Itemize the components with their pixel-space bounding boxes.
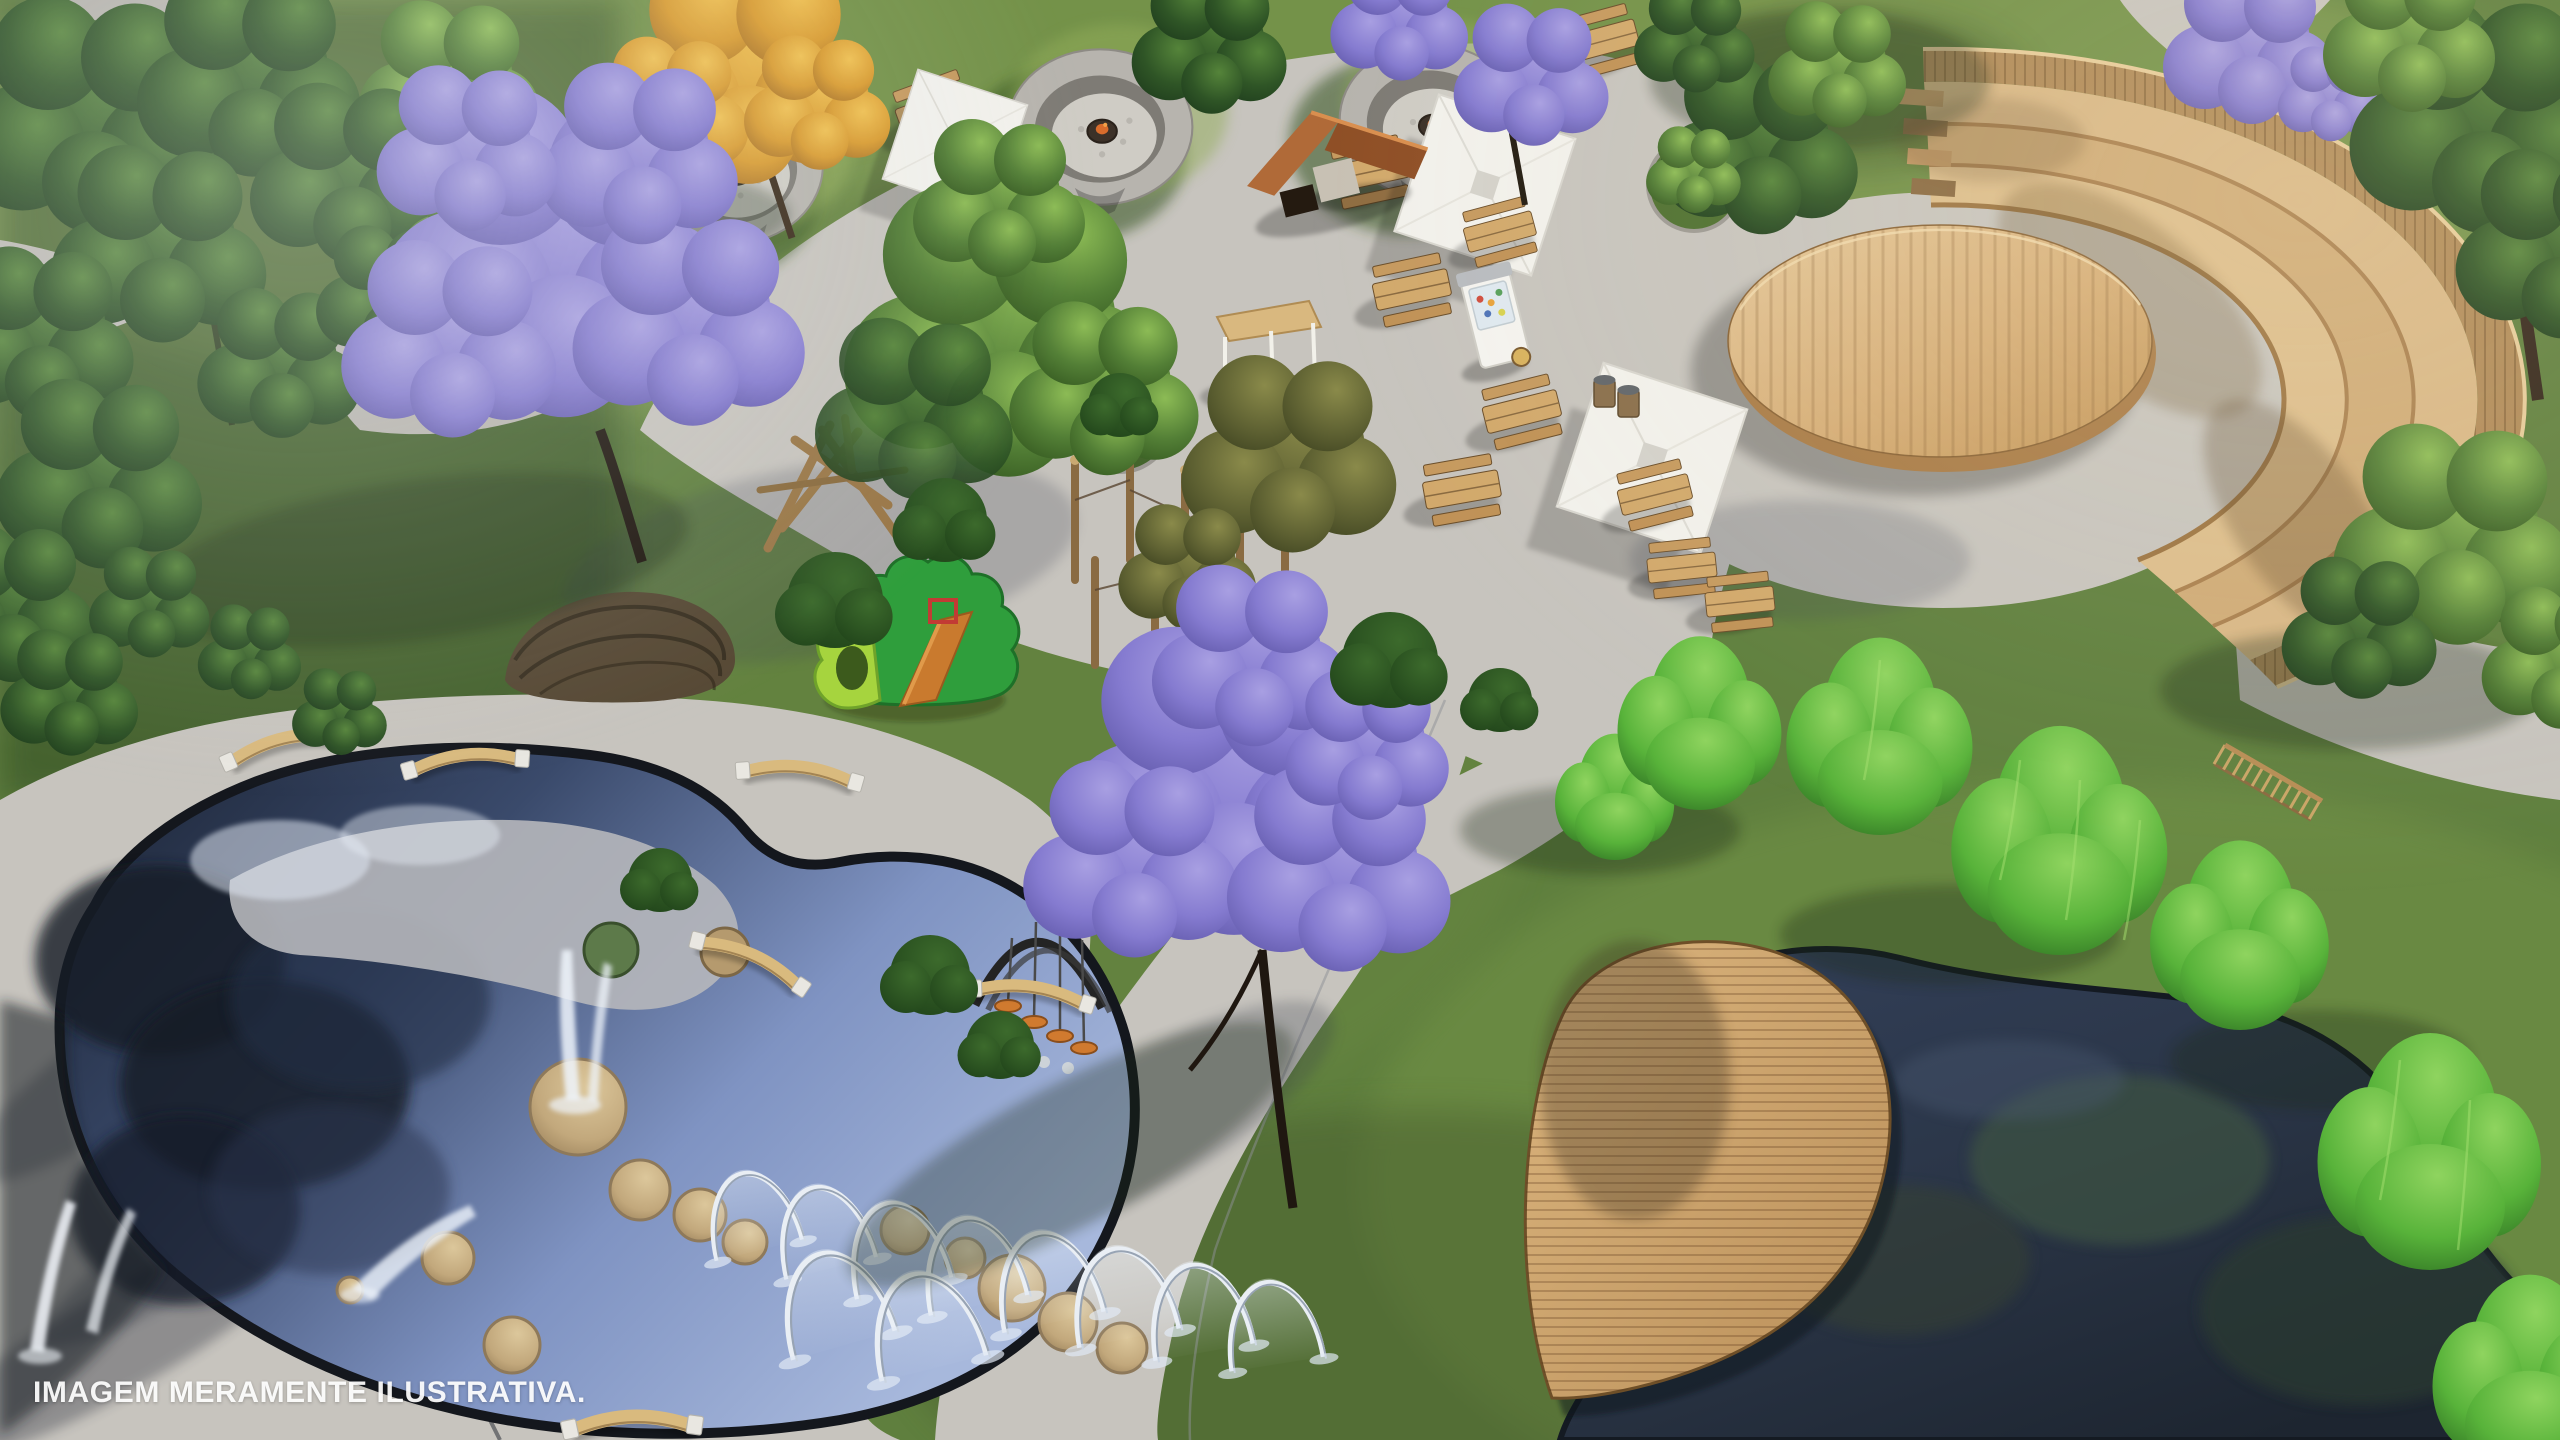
park-illustration <box>0 0 2560 1440</box>
park-render: IMAGEM MERAMENTE ILUSTRATIVA. <box>0 0 2560 1440</box>
disclaimer-watermark: IMAGEM MERAMENTE ILUSTRATIVA. <box>33 1376 586 1410</box>
light-grading <box>0 0 2560 1440</box>
